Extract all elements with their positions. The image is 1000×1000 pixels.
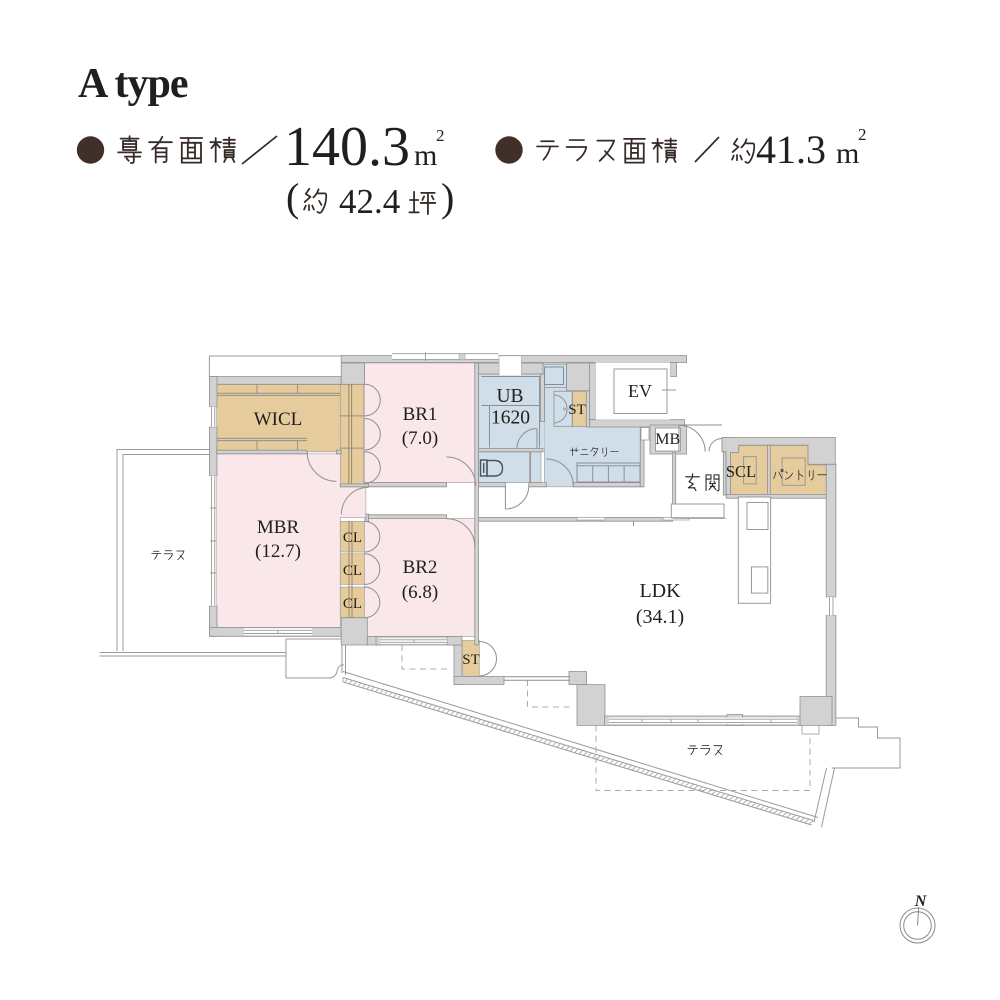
svg-text:2: 2: [436, 126, 445, 145]
svg-text:SCL: SCL: [726, 462, 756, 481]
svg-text:m: m: [836, 137, 859, 170]
svg-text:WICL: WICL: [254, 409, 303, 430]
svg-text:LDK: LDK: [639, 580, 681, 602]
svg-text:ST: ST: [462, 652, 480, 668]
svg-text:(6.8): (6.8): [402, 582, 438, 603]
svg-text:MB: MB: [655, 431, 680, 448]
svg-text:CL: CL: [343, 530, 362, 546]
svg-text:41.3: 41.3: [756, 127, 826, 172]
svg-text:A type: A type: [78, 61, 188, 107]
svg-text:BR2: BR2: [403, 557, 438, 578]
svg-text:CL: CL: [343, 563, 362, 579]
svg-text:BR1: BR1: [403, 404, 438, 425]
svg-text:42.4: 42.4: [339, 182, 400, 221]
svg-text:(: (: [286, 175, 299, 220]
svg-text:EV: EV: [628, 381, 652, 401]
svg-text:ST: ST: [568, 402, 586, 418]
svg-text:1620: 1620: [491, 408, 530, 429]
svg-text:UB: UB: [496, 386, 523, 407]
svg-text:N: N: [914, 893, 928, 910]
svg-text:m: m: [414, 139, 437, 172]
svg-text:): ): [441, 175, 454, 220]
svg-text:(12.7): (12.7): [255, 541, 301, 562]
svg-text:MBR: MBR: [257, 517, 300, 538]
svg-text:(34.1): (34.1): [636, 606, 684, 628]
svg-text:(7.0): (7.0): [402, 428, 438, 449]
svg-text:CL: CL: [343, 596, 362, 612]
svg-text:2: 2: [858, 125, 867, 144]
svg-text:140.3: 140.3: [284, 116, 410, 178]
